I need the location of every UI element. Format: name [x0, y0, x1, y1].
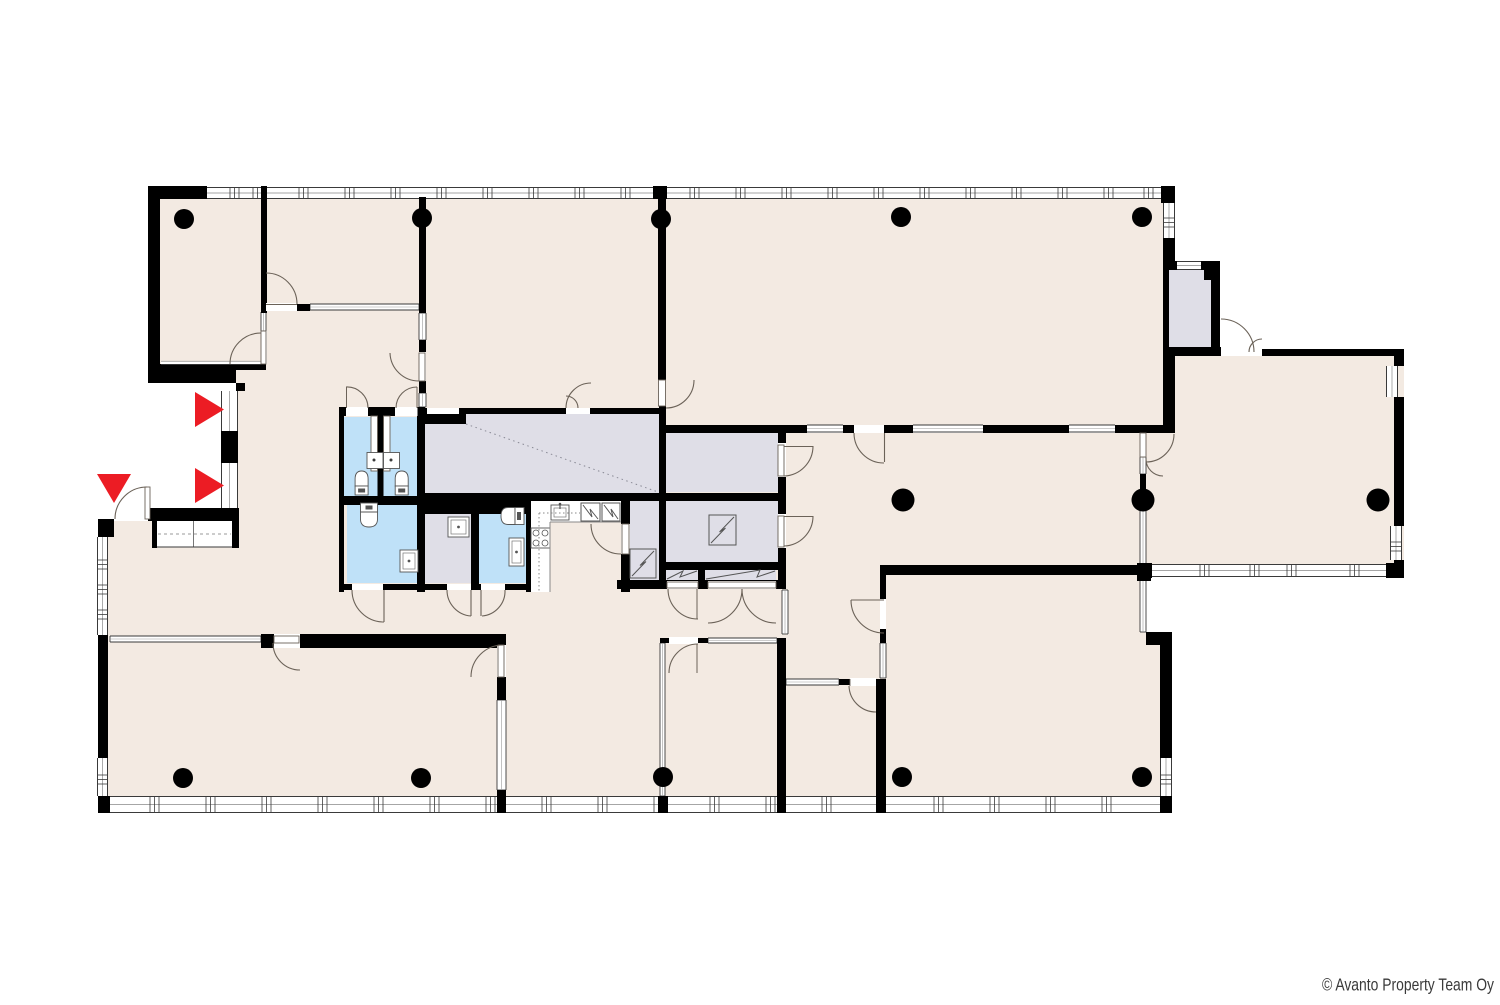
svg-text:© Avanto Property Team Oy: © Avanto Property Team Oy [1322, 975, 1494, 995]
